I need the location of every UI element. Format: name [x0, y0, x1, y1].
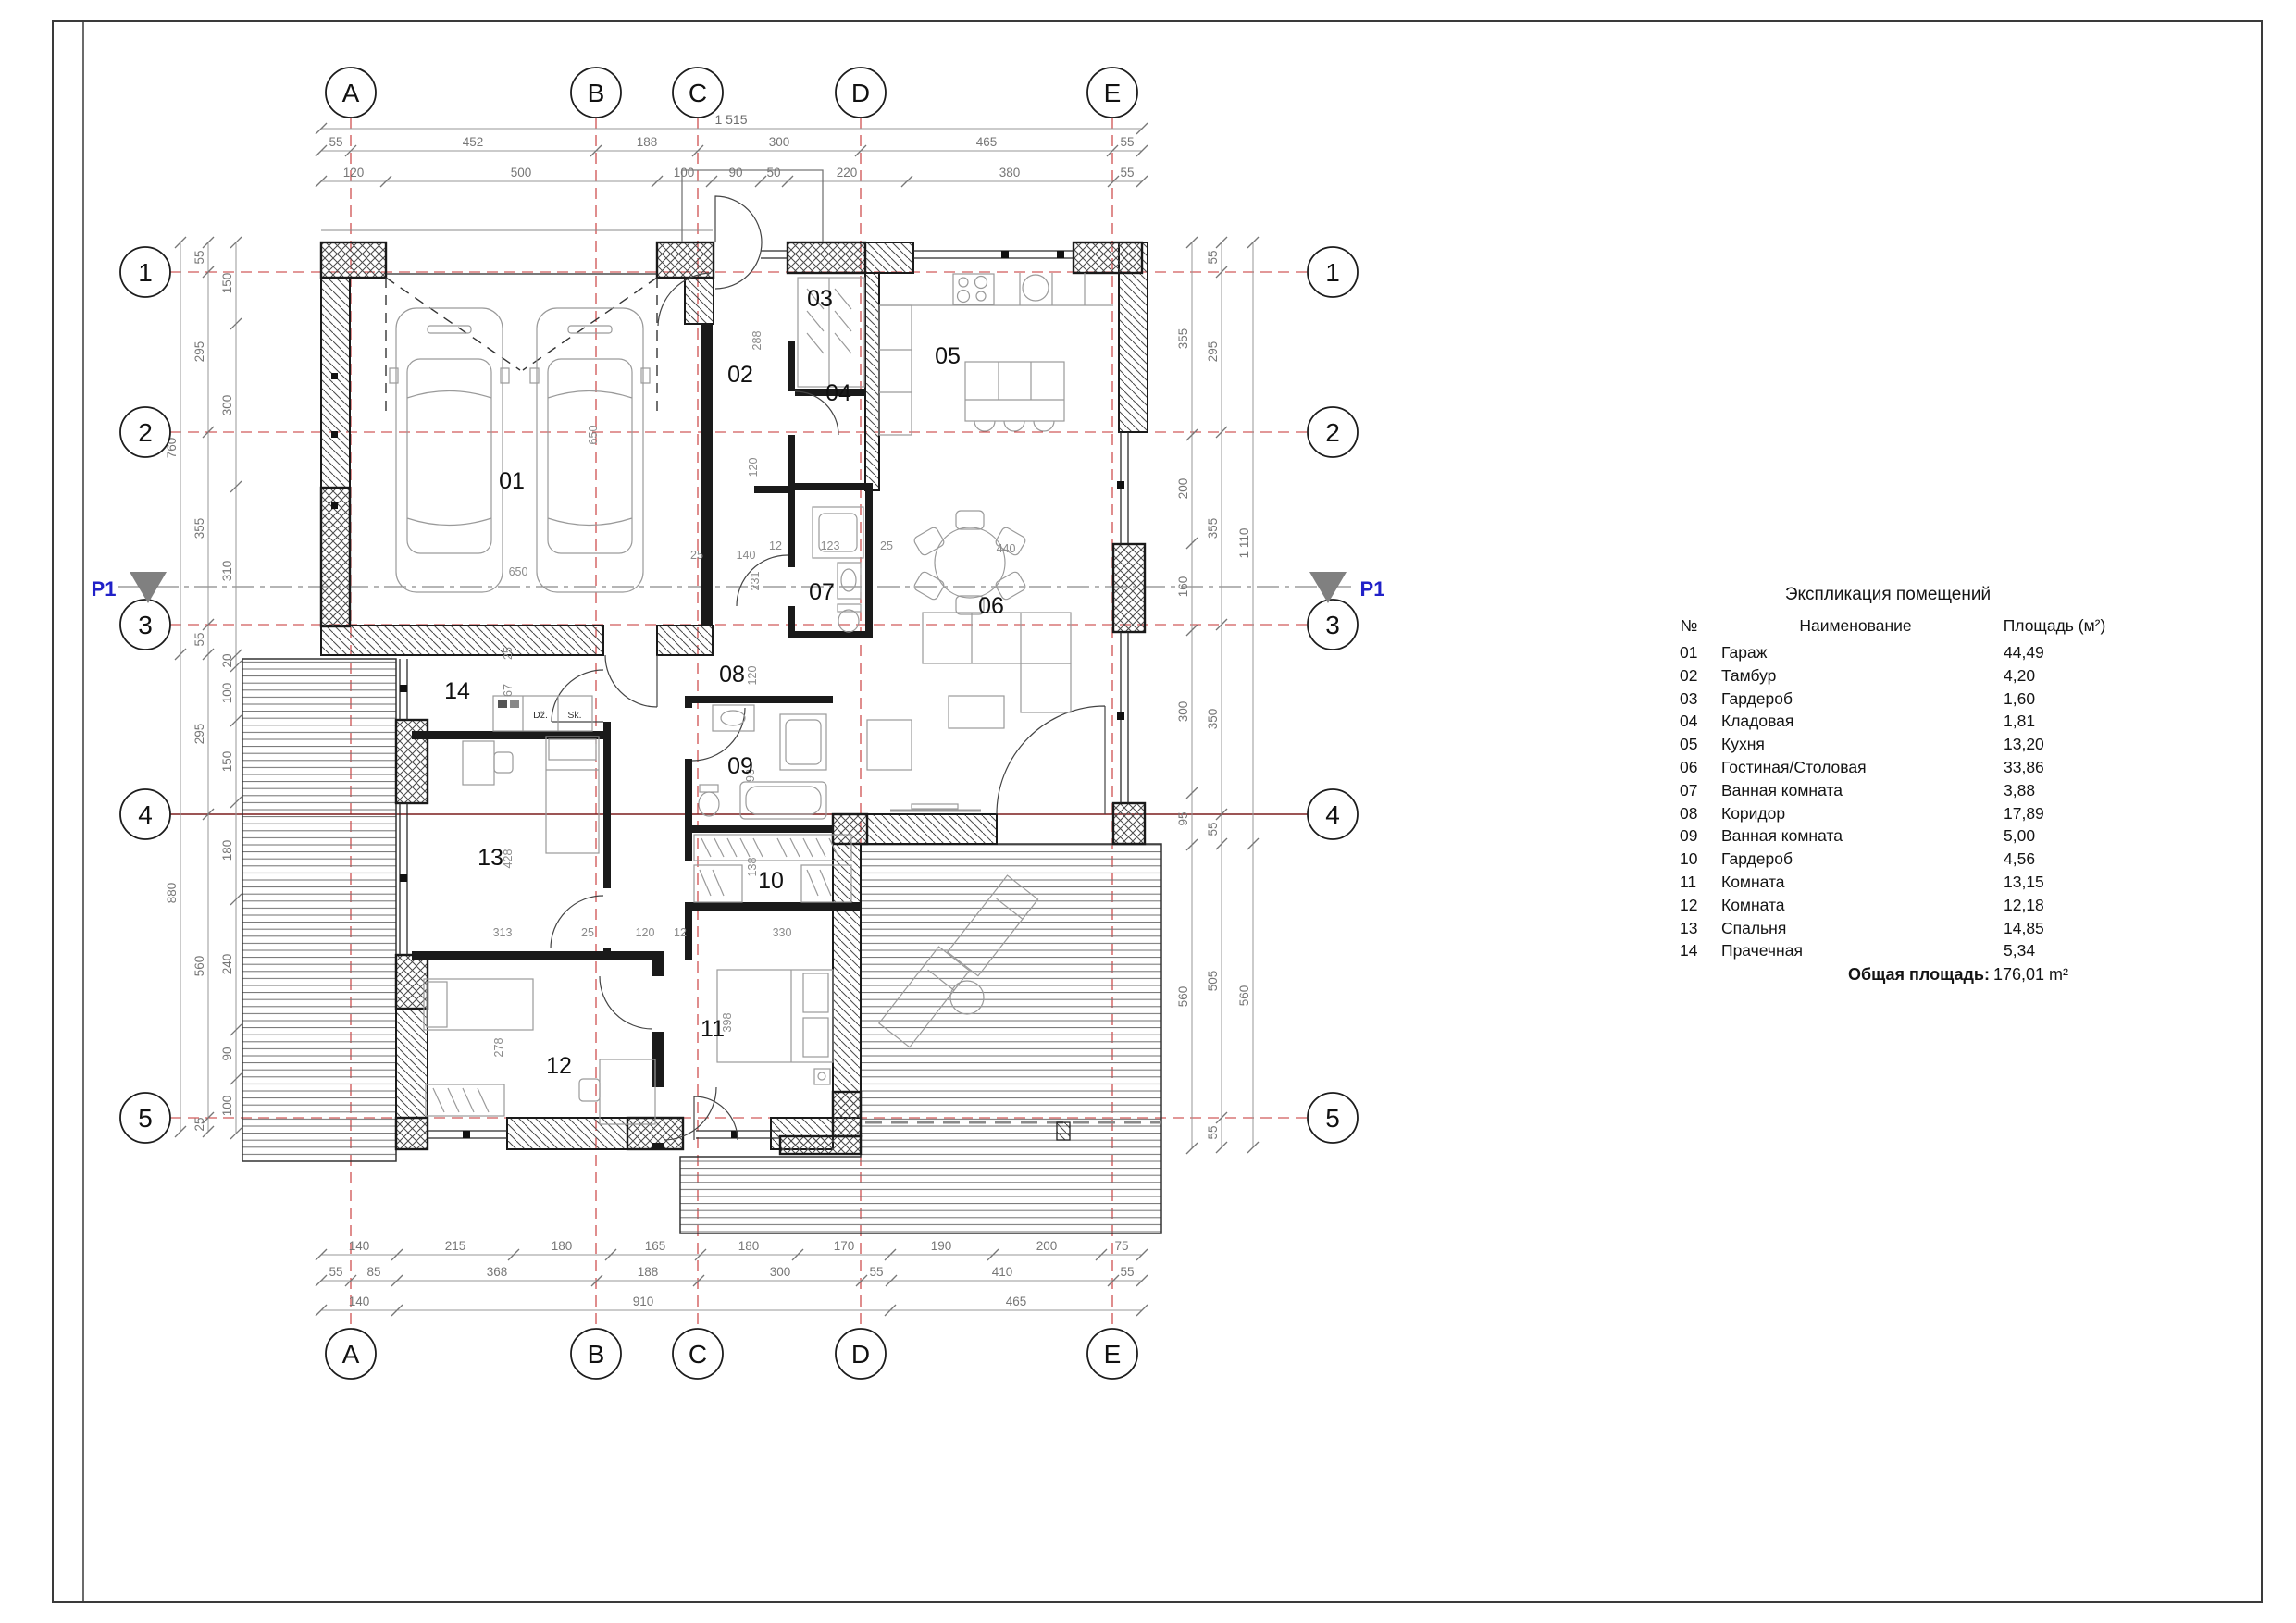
legend-row: 05 Кухня 13,20	[1657, 733, 2119, 756]
legend-room-no: 07	[1657, 779, 1721, 802]
svg-text:313: 313	[493, 926, 513, 939]
room-label-02: 02	[727, 362, 753, 388]
room-label-14: 14	[444, 678, 470, 704]
legend-total-value: 176,01 m²	[1990, 965, 2068, 985]
room-label-07: 07	[809, 579, 835, 605]
legend-title: Экспликация помещений	[1657, 585, 2119, 605]
room-label-13: 13	[478, 845, 503, 871]
svg-text:465: 465	[1006, 1295, 1027, 1308]
axis-2-left: 2	[138, 418, 153, 447]
section-marker-right: P1	[1309, 572, 1384, 603]
legend-room-name: Тамбур	[1721, 664, 1990, 688]
svg-text:300: 300	[769, 135, 790, 149]
axis-3-right: 3	[1325, 611, 1340, 639]
bed-11	[717, 970, 833, 1084]
legend-room-name: Кладовая	[1721, 710, 1990, 733]
svg-text:160: 160	[1176, 576, 1190, 598]
legend-room-no: 13	[1657, 917, 1721, 940]
bath-09	[699, 705, 826, 819]
legend-room-name: Спальня	[1721, 917, 1990, 940]
svg-text:200: 200	[1036, 1239, 1058, 1253]
section-label-p1-left: P1	[92, 577, 117, 601]
svg-text:220: 220	[837, 166, 858, 180]
kitchen-counter	[879, 273, 1113, 435]
legend-room-name: Гардероб	[1721, 688, 1990, 711]
svg-text:560: 560	[1176, 986, 1190, 1008]
room-label-08: 08	[719, 662, 745, 688]
terrace-left	[242, 659, 396, 1161]
room-12-furniture	[424, 979, 655, 1124]
svg-text:25: 25	[581, 926, 594, 939]
svg-text:180: 180	[220, 840, 234, 861]
tv-bench	[890, 804, 981, 811]
legend-room-no: 09	[1657, 824, 1721, 848]
svg-text:240: 240	[220, 954, 234, 975]
legend-room-area: 44,49	[1990, 641, 2119, 664]
svg-text:150: 150	[220, 273, 234, 294]
svg-text:650: 650	[587, 426, 600, 445]
legend-row: 10 Гардероб 4,56	[1657, 848, 2119, 871]
svg-text:90: 90	[728, 166, 742, 180]
room-label-12: 12	[546, 1053, 572, 1079]
svg-text:25: 25	[192, 1117, 206, 1131]
svg-text:190: 190	[931, 1239, 952, 1253]
svg-text:90: 90	[220, 1047, 234, 1060]
svg-text:123: 123	[821, 539, 840, 552]
svg-text:278: 278	[492, 1038, 505, 1058]
svg-text:120: 120	[747, 458, 760, 477]
section-label-p1-right: P1	[1360, 577, 1385, 601]
axis-1-left: 1	[138, 258, 153, 287]
svg-text:55: 55	[192, 250, 206, 264]
section-marker-left: P1	[92, 572, 167, 603]
legend-room-area: 1,81	[1990, 710, 2119, 733]
axis-3-left: 3	[138, 611, 153, 639]
svg-text:120: 120	[636, 926, 655, 939]
legend-row: 11 Комната 13,15	[1657, 871, 2119, 894]
legend-row: 09 Ванная комната 5,00	[1657, 824, 2119, 848]
svg-text:1 110: 1 110	[1237, 528, 1251, 559]
legend-room-no: 08	[1657, 802, 1721, 825]
svg-text:140: 140	[349, 1295, 370, 1308]
svg-text:505: 505	[1206, 971, 1220, 992]
legend-room-area: 5,00	[1990, 824, 2119, 848]
legend-room-no: 03	[1657, 688, 1721, 711]
axis-a-bottom: A	[342, 1340, 360, 1369]
svg-text:188: 188	[637, 135, 658, 149]
legend-room-area: 3,88	[1990, 779, 2119, 802]
axis-b-top: B	[588, 79, 605, 107]
axis-d-top: D	[851, 79, 870, 107]
legend-room-area: 4,56	[1990, 848, 2119, 871]
svg-text:25: 25	[502, 647, 515, 660]
legend-row: 07 Ванная комната 3,88	[1657, 779, 2119, 802]
svg-text:350: 350	[1206, 709, 1220, 730]
room-label-06: 06	[978, 593, 1004, 619]
svg-text:75: 75	[1114, 1239, 1128, 1253]
legend-room-area: 13,20	[1990, 733, 2119, 756]
legend-room-area: 1,60	[1990, 688, 2119, 711]
legend-room-name: Гараж	[1721, 641, 1990, 664]
legend-room-no: 14	[1657, 939, 1721, 962]
legend-col-name: Наименование	[1721, 616, 1990, 636]
legend-row: 13 Спальня 14,85	[1657, 917, 2119, 940]
axis-e-bottom: E	[1104, 1340, 1122, 1369]
svg-text:85: 85	[366, 1265, 380, 1279]
svg-text:150: 150	[220, 751, 234, 773]
legend-room-area: 13,15	[1990, 871, 2119, 894]
room-label-01: 01	[499, 468, 525, 494]
svg-text:55: 55	[192, 632, 206, 646]
svg-text:55: 55	[869, 1265, 883, 1279]
svg-text:50: 50	[766, 166, 780, 180]
room-label-11: 11	[701, 1016, 725, 1042]
svg-text:100: 100	[220, 1096, 234, 1117]
axis-b-bottom: B	[588, 1340, 605, 1369]
legend-room-name: Гардероб	[1721, 848, 1990, 871]
svg-text:200: 200	[1176, 478, 1190, 500]
axis-c-top: C	[689, 79, 707, 107]
legend-col-no: №	[1657, 616, 1721, 636]
svg-text:170: 170	[834, 1239, 855, 1253]
svg-text:500: 500	[511, 166, 532, 180]
svg-text:650: 650	[509, 565, 528, 578]
svg-text:1 515: 1 515	[714, 112, 747, 127]
legend-row: 14 Прачечная 5,34	[1657, 939, 2119, 962]
legend-room-no: 06	[1657, 756, 1721, 779]
svg-text:295: 295	[192, 724, 206, 745]
svg-text:55: 55	[1120, 166, 1134, 180]
legend-room-area: 14,85	[1990, 917, 2119, 940]
legend-room-name: Ванная комната	[1721, 824, 1990, 848]
svg-text:368: 368	[487, 1265, 508, 1279]
svg-text:295: 295	[1206, 341, 1220, 363]
legend-room-name: Прачечная	[1721, 939, 1990, 962]
legend-room-area: 33,86	[1990, 756, 2119, 779]
legend-room-name: Кухня	[1721, 733, 1990, 756]
legend-room-name: Коридор	[1721, 802, 1990, 825]
svg-text:355: 355	[1176, 328, 1190, 350]
svg-text:55: 55	[1206, 1125, 1220, 1139]
axis-2-right: 2	[1325, 418, 1340, 447]
svg-text:120: 120	[343, 166, 365, 180]
washer-label: Dž.	[533, 710, 548, 721]
kitchen-island	[965, 362, 1064, 431]
legend-total-label: Общая площадь:	[1657, 965, 1990, 985]
bath-07	[813, 507, 863, 632]
legend-row: 12 Комната 12,18	[1657, 894, 2119, 917]
svg-text:67: 67	[502, 684, 515, 697]
legend-room-no: 04	[1657, 710, 1721, 733]
axis-4-left: 4	[138, 800, 153, 829]
svg-text:120: 120	[746, 666, 759, 686]
svg-text:140: 140	[737, 549, 756, 562]
legend-room-name: Комната	[1721, 871, 1990, 894]
legend-room-no: 02	[1657, 664, 1721, 688]
legend-room-no: 05	[1657, 733, 1721, 756]
svg-text:180: 180	[738, 1239, 760, 1253]
drawing-sheet: 1 515 55 452 188 300 465 55 120 500 100 …	[0, 0, 2296, 1623]
svg-text:300: 300	[770, 1265, 791, 1279]
room-label-10: 10	[758, 868, 784, 894]
svg-text:95: 95	[1176, 811, 1190, 825]
room-label-04: 04	[825, 380, 851, 406]
bed-13	[463, 737, 599, 853]
svg-text:300: 300	[1176, 701, 1190, 723]
svg-text:355: 355	[1206, 518, 1220, 539]
svg-text:165: 165	[645, 1239, 666, 1253]
legend-col-area: Площадь (м²)	[1990, 616, 2119, 636]
svg-text:288: 288	[751, 331, 763, 351]
legend-room-no: 01	[1657, 641, 1721, 664]
legend-row: 04 Кладовая 1,81	[1657, 710, 2119, 733]
axis-d-bottom: D	[851, 1340, 870, 1369]
axis-5-right: 5	[1325, 1104, 1340, 1133]
sofa	[867, 613, 1071, 770]
dining-table	[912, 511, 1026, 614]
legend-room-area: 12,18	[1990, 894, 2119, 917]
legend-room-no: 10	[1657, 848, 1721, 871]
svg-text:180: 180	[552, 1239, 573, 1253]
svg-text:12: 12	[769, 539, 782, 552]
garage-doors-dashed	[386, 278, 657, 412]
svg-text:310: 310	[220, 561, 234, 582]
legend-room-no: 12	[1657, 894, 1721, 917]
legend-row: 01 Гараж 44,49	[1657, 641, 2119, 664]
svg-text:25: 25	[690, 549, 703, 562]
svg-text:25: 25	[880, 539, 893, 552]
legend-total: Общая площадь: 176,01 m²	[1657, 965, 2119, 985]
legend-room-name: Ванная комната	[1721, 779, 1990, 802]
svg-text:55: 55	[1120, 135, 1134, 149]
axis-4-right: 4	[1325, 800, 1340, 829]
legend-room-area: 4,20	[1990, 664, 2119, 688]
svg-text:295: 295	[192, 341, 206, 363]
axis-5-left: 5	[138, 1104, 153, 1133]
axis-a-top: A	[342, 79, 360, 107]
axis-e-top: E	[1104, 79, 1122, 107]
svg-text:465: 465	[976, 135, 998, 149]
svg-text:410: 410	[992, 1265, 1013, 1279]
svg-text:55: 55	[1120, 1265, 1134, 1279]
legend-row: 08 Коридор 17,89	[1657, 802, 2119, 825]
svg-text:300: 300	[220, 395, 234, 416]
car-2	[530, 308, 650, 592]
svg-text:188: 188	[638, 1265, 659, 1279]
room-legend: Экспликация помещений № Наименование Пло…	[1657, 585, 2119, 985]
svg-text:880: 880	[165, 883, 179, 904]
axis-1-right: 1	[1325, 258, 1340, 287]
svg-text:55: 55	[329, 135, 342, 149]
svg-text:231: 231	[749, 572, 762, 591]
svg-text:560: 560	[192, 956, 206, 977]
legend-room-area: 5,34	[1990, 939, 2119, 962]
svg-text:428: 428	[502, 849, 515, 869]
svg-text:452: 452	[463, 135, 484, 149]
svg-text:55: 55	[1206, 250, 1220, 264]
legend-room-name: Комната	[1721, 894, 1990, 917]
room-label-03: 03	[807, 286, 833, 312]
svg-text:55: 55	[1206, 822, 1220, 836]
svg-text:560: 560	[1237, 985, 1251, 1007]
axis-c-bottom: C	[689, 1340, 707, 1369]
svg-text:138: 138	[746, 858, 759, 877]
legend-rows: 01 Гараж 44,49 02 Тамбур 4,20 03 Гардеро…	[1657, 641, 2119, 962]
svg-text:440: 440	[997, 542, 1016, 555]
svg-text:330: 330	[773, 926, 792, 939]
svg-text:380: 380	[999, 166, 1021, 180]
svg-text:140: 140	[349, 1239, 370, 1253]
legend-row: 02 Тамбур 4,20	[1657, 664, 2119, 688]
legend-room-no: 11	[1657, 871, 1721, 894]
svg-text:215: 215	[445, 1239, 466, 1253]
svg-text:910: 910	[633, 1295, 654, 1308]
svg-text:355: 355	[192, 518, 206, 539]
svg-text:55: 55	[329, 1265, 342, 1279]
legend-room-area: 17,89	[1990, 802, 2119, 825]
legend-row: 03 Гардероб 1,60	[1657, 688, 2119, 711]
legend-room-name: Гостиная/Столовая	[1721, 756, 1990, 779]
dryer-label: Sk.	[567, 710, 581, 721]
svg-text:100: 100	[674, 166, 695, 180]
svg-text:12: 12	[674, 926, 687, 939]
legend-header: № Наименование Площадь (м²)	[1657, 616, 2119, 636]
room-label-05: 05	[935, 343, 961, 369]
legend-row: 06 Гостиная/Столовая 33,86	[1657, 756, 2119, 779]
svg-text:100: 100	[220, 683, 234, 704]
room-label-09: 09	[727, 753, 753, 779]
svg-text:20: 20	[220, 653, 234, 667]
